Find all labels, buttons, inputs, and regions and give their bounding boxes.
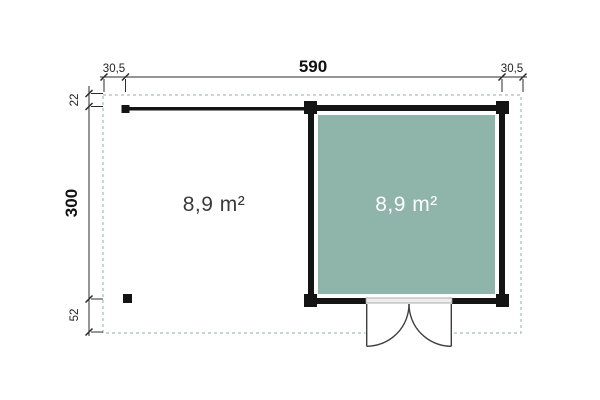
dim-label-left-overhang: 30,5 bbox=[103, 63, 125, 75]
cabin-area-label: 8,9 m² bbox=[375, 193, 438, 216]
corner-post-bottom-right bbox=[496, 294, 509, 307]
corner-post-top-right bbox=[496, 101, 509, 114]
dim-label-total-width: 590 bbox=[299, 57, 327, 76]
door-threshold bbox=[366, 298, 452, 303]
dim-label-right-overhang: 30,5 bbox=[501, 63, 523, 75]
corner-post-bottom-left bbox=[304, 294, 317, 307]
dim-label-total-depth: 300 bbox=[62, 189, 81, 217]
canopy-structure: 8,9 m² bbox=[122, 105, 313, 303]
floor-plan-drawing: 30,5 590 30,5 22 300 52 8,9 m² 8,9 m² bbox=[0, 0, 600, 400]
cabin-structure: 8,9 m² bbox=[304, 101, 509, 347]
corner-post-top-left bbox=[304, 101, 317, 114]
dimension-line-top: 30,5 590 30,5 bbox=[100, 57, 527, 92]
canopy-wall-end-cap bbox=[122, 105, 130, 113]
canopy-front-post bbox=[123, 294, 132, 303]
floor-plan-page: 30,5 590 30,5 22 300 52 8,9 m² 8,9 m² bbox=[0, 0, 600, 400]
canopy-rear-wall bbox=[125, 107, 312, 111]
dim-label-top-overhang: 22 bbox=[69, 94, 81, 107]
canopy-area-label: 8,9 m² bbox=[183, 193, 246, 216]
dimension-line-left: 22 300 52 bbox=[62, 86, 103, 336]
dim-label-bottom-overhang: 52 bbox=[69, 309, 81, 322]
